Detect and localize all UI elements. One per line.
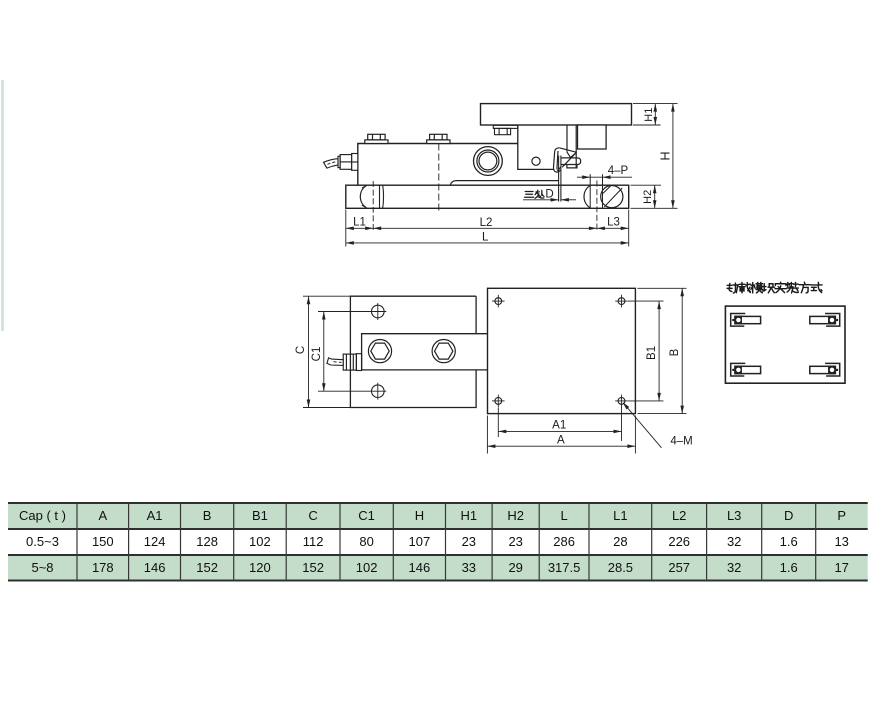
svg-text:A: A [98,508,107,523]
svg-text:L2: L2 [672,508,686,523]
svg-text:0.5~3: 0.5~3 [26,534,59,549]
svg-text:L2: L2 [480,217,493,229]
svg-text:178: 178 [92,560,114,575]
svg-text:B1: B1 [252,508,268,523]
svg-text:17: 17 [834,560,848,575]
svg-text:P: P [837,508,846,523]
svg-text:L1: L1 [353,216,366,228]
svg-text:28: 28 [613,534,627,549]
svg-text:L3: L3 [727,508,741,523]
svg-text:H1: H1 [460,508,477,523]
svg-text:102: 102 [356,560,378,575]
svg-text:L: L [560,508,567,523]
svg-text:C: C [308,508,317,523]
svg-text:H2: H2 [507,508,524,523]
svg-text:226: 226 [668,534,690,549]
svg-text:80: 80 [359,534,373,549]
svg-text:B: B [669,348,681,356]
svg-text:A: A [557,434,565,446]
svg-text:152: 152 [196,560,218,575]
svg-text:L3: L3 [607,216,620,228]
svg-text:33: 33 [462,560,476,575]
svg-text:286: 286 [553,534,575,549]
svg-text:146: 146 [144,560,166,575]
svg-text:124: 124 [144,534,166,549]
svg-text:146: 146 [409,560,431,575]
svg-text:L: L [482,231,489,243]
svg-text:29: 29 [508,560,522,575]
svg-text:H2: H2 [642,190,654,204]
svg-text:150: 150 [92,534,114,549]
svg-text:C1: C1 [311,347,323,362]
svg-text:Cap ( t ): Cap ( t ) [19,508,66,523]
svg-text:1.6: 1.6 [780,560,798,575]
svg-text:32: 32 [727,534,741,549]
svg-text:A1: A1 [147,508,163,523]
svg-text:32: 32 [727,560,741,575]
svg-text:4–M: 4–M [670,435,692,447]
svg-text:28.5: 28.5 [608,560,633,575]
svg-text:120: 120 [249,560,271,575]
svg-text:152: 152 [302,560,324,575]
svg-text:102: 102 [249,534,271,549]
svg-text:317.5: 317.5 [548,560,581,575]
svg-text:H: H [659,151,673,160]
svg-text:B1: B1 [646,346,658,360]
svg-text:107: 107 [409,534,431,549]
svg-text:5~8: 5~8 [31,560,53,575]
svg-text:112: 112 [303,534,324,549]
svg-text:128: 128 [196,534,218,549]
svg-text:H: H [415,508,424,523]
svg-text:23: 23 [462,534,476,549]
svg-text:A1: A1 [552,419,566,431]
svg-text:H1: H1 [643,108,655,122]
svg-text:23: 23 [508,534,522,549]
svg-text:1.6: 1.6 [780,534,798,549]
svg-text:L1: L1 [613,508,627,523]
svg-text:4–P: 4–P [608,165,629,177]
svg-text:257: 257 [668,560,690,575]
svg-text:D: D [784,508,793,523]
svg-text:13: 13 [834,534,848,549]
svg-text:B: B [203,508,212,523]
svg-text:C: C [295,346,307,354]
svg-text:C1: C1 [358,508,375,523]
